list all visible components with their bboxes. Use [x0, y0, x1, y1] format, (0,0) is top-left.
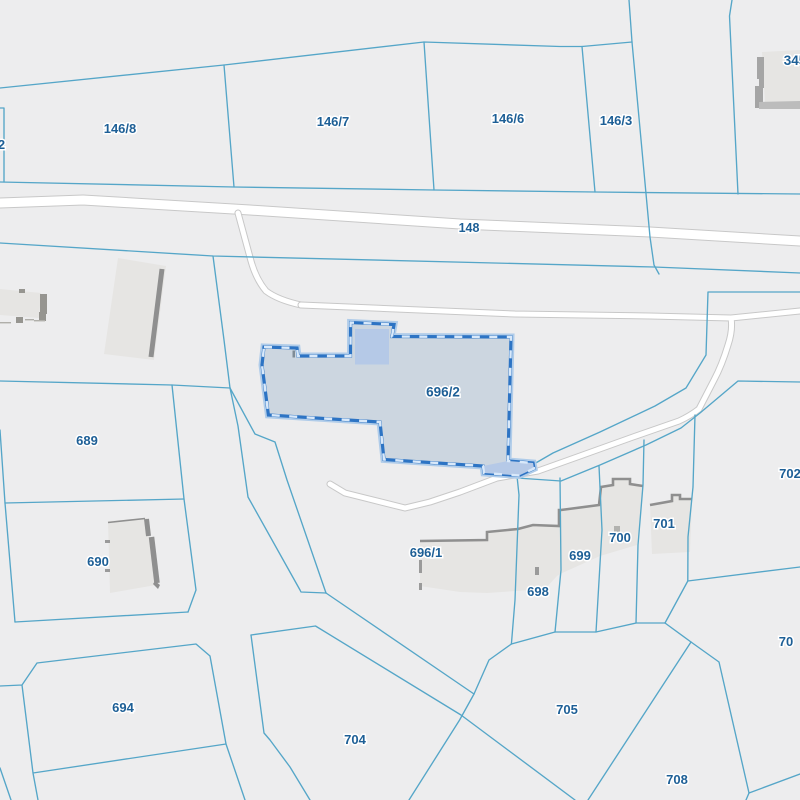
svg-text:708: 708 [666, 772, 688, 787]
svg-text:702: 702 [779, 466, 800, 481]
svg-text:696/1: 696/1 [410, 545, 443, 560]
svg-text:700: 700 [609, 530, 631, 545]
svg-text:70: 70 [779, 634, 793, 649]
svg-text:698: 698 [527, 584, 549, 599]
svg-text:146/8: 146/8 [104, 121, 137, 136]
svg-text:148: 148 [459, 221, 480, 235]
svg-text:694: 694 [112, 700, 134, 715]
svg-text:704: 704 [344, 732, 366, 747]
svg-text:705: 705 [556, 702, 578, 717]
svg-text:690: 690 [87, 554, 109, 569]
svg-text:696/2: 696/2 [426, 385, 460, 400]
svg-text:2: 2 [0, 137, 5, 152]
svg-text:146/7: 146/7 [317, 114, 350, 129]
svg-text:699: 699 [569, 548, 591, 563]
svg-text:689: 689 [76, 433, 98, 448]
svg-text:146/6: 146/6 [492, 111, 525, 126]
svg-text:345: 345 [784, 53, 800, 68]
svg-text:701: 701 [653, 516, 675, 531]
svg-text:146/3: 146/3 [600, 113, 633, 128]
